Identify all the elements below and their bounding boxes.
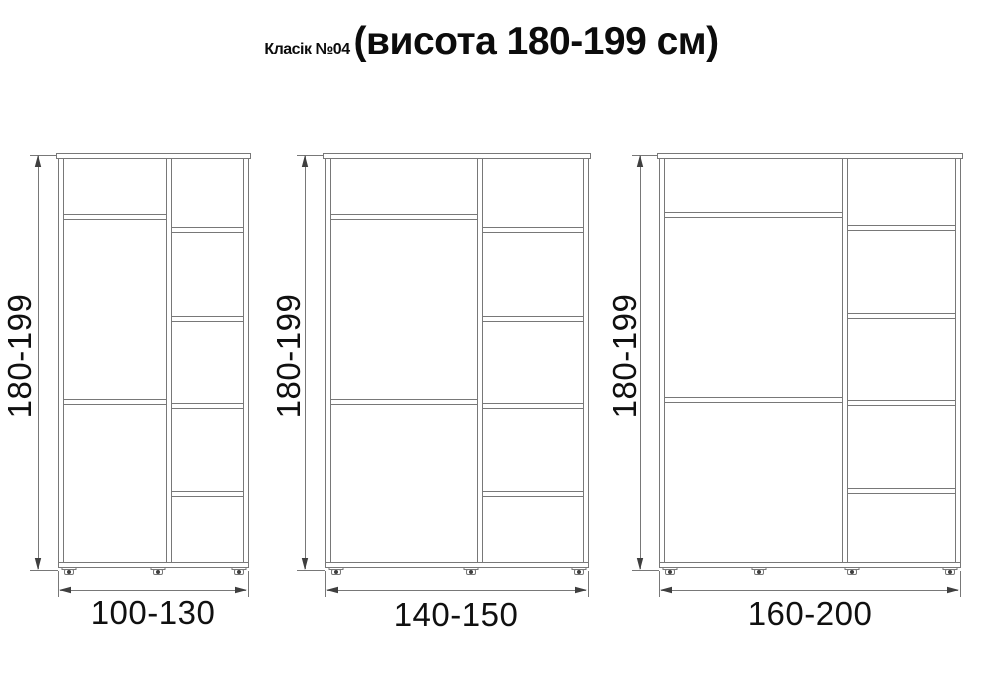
wardrobe-160-200 xyxy=(632,154,963,598)
cabinet-2-width-label: 140-150 xyxy=(336,595,576,635)
cabinet-3-width-label: 160-200 xyxy=(690,594,930,634)
cabinet-2-height-label: 180-199 xyxy=(269,276,309,436)
cabinet-1-height-label: 180-199 xyxy=(0,276,40,436)
wardrobe-100-130 xyxy=(30,154,251,598)
wardrobe-140-150 xyxy=(297,154,591,598)
cabinet-3-height-label: 180-199 xyxy=(605,276,645,436)
cabinet-1-width-label: 100-130 xyxy=(33,593,273,633)
